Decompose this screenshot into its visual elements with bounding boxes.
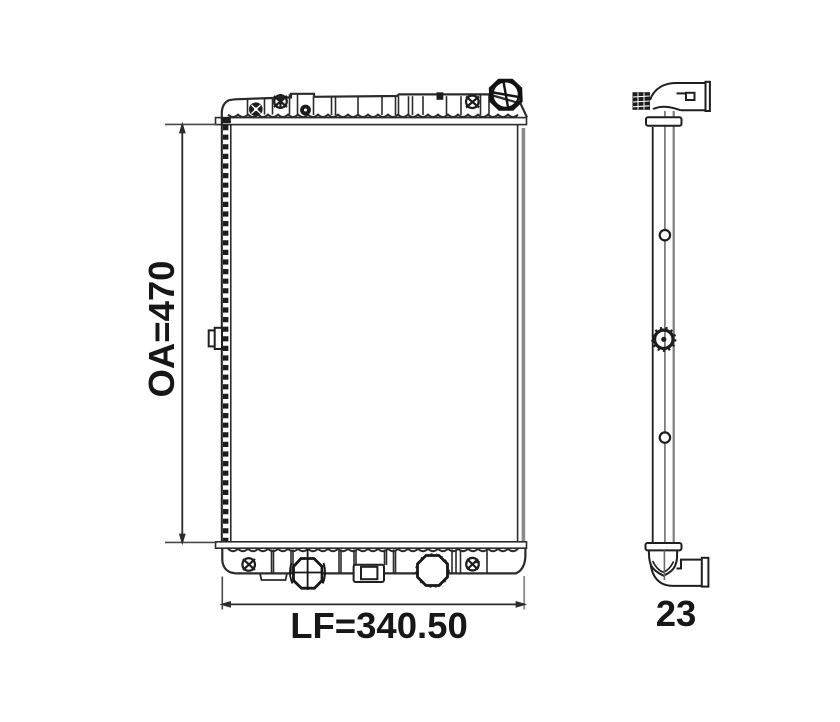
svg-text:LF=340.50: LF=340.50 xyxy=(290,605,468,646)
svg-text:OA=470: OA=470 xyxy=(141,261,182,398)
svg-text:23: 23 xyxy=(656,593,697,634)
